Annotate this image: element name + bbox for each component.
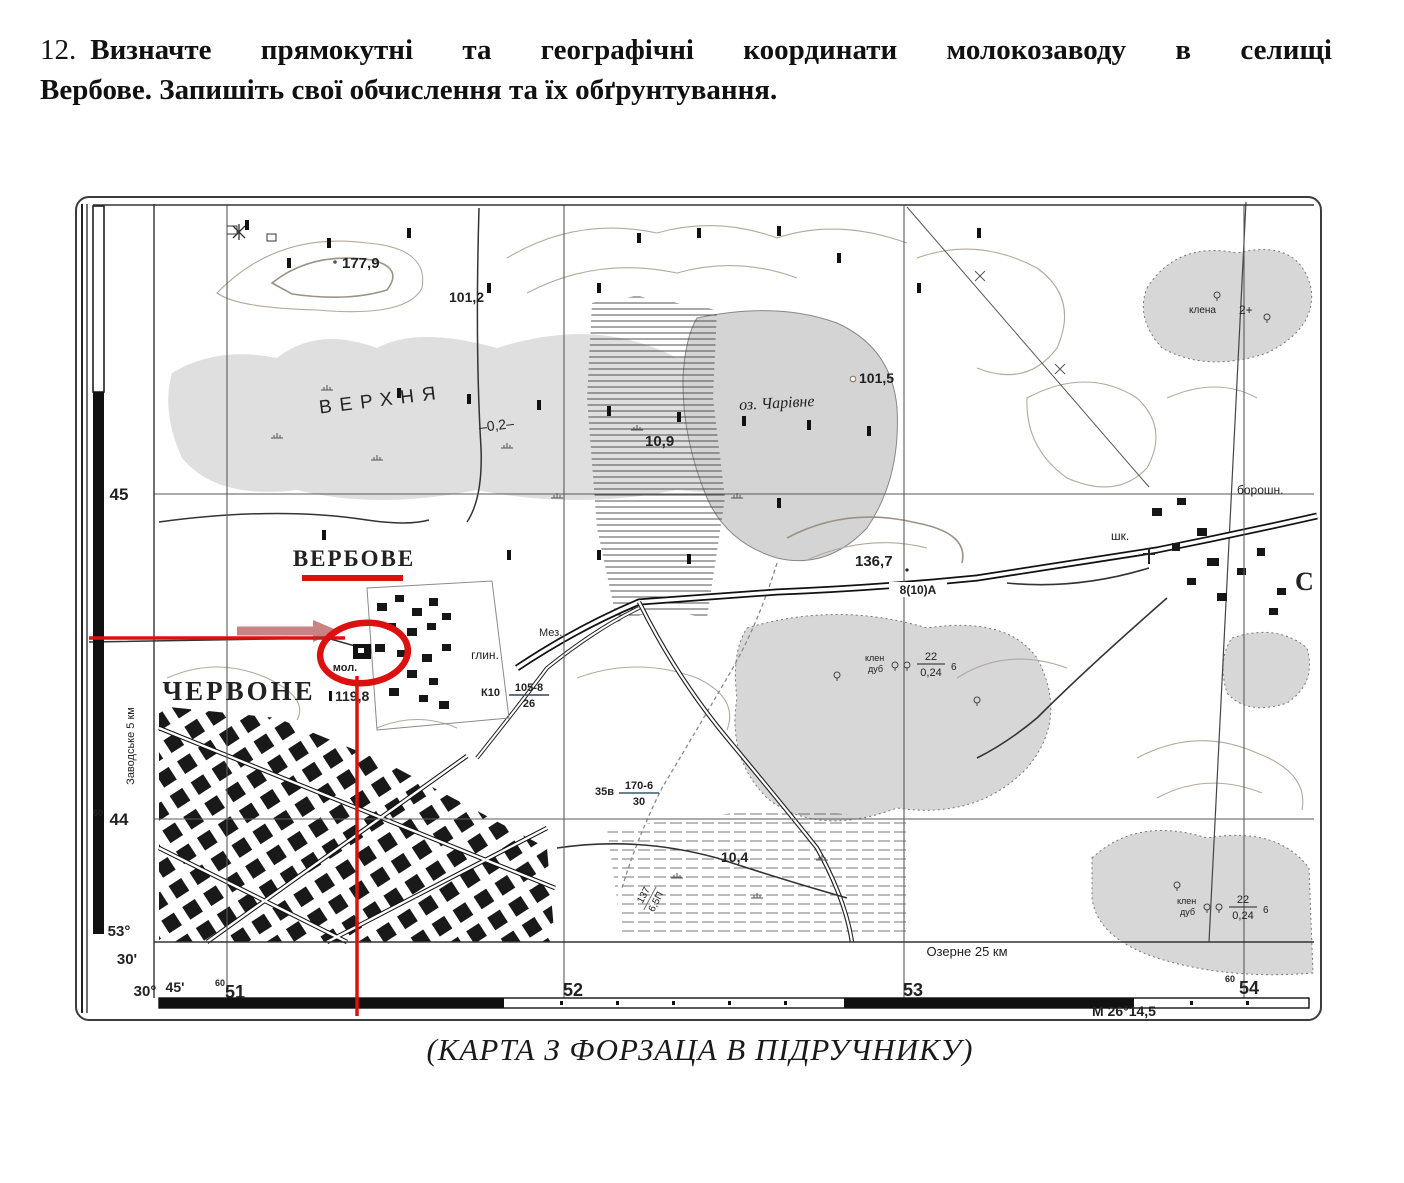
- bridge1-top: 105-8: [515, 682, 543, 694]
- mez-label: Мез.: [539, 627, 562, 639]
- settlement-label-chervone: ЧЕРВОНЕ: [162, 676, 315, 706]
- elevation-101-2: 101,2: [449, 289, 484, 305]
- clay-pit-label: глин.: [471, 648, 499, 662]
- map-caption: (КАРТА З ФОРЗАЦА В ПІДРУЧНИКУ): [80, 1032, 1320, 1068]
- wetland-hatched-area: [587, 296, 725, 622]
- northing-44-label: 44: [110, 810, 129, 829]
- spot-height-dot: [333, 260, 337, 264]
- settlement-label-partial: С: [1295, 567, 1314, 596]
- task-statement: 12.Визначте прямокутні та географічні ко…: [40, 30, 1332, 110]
- forest2-species1: клен: [1177, 896, 1196, 906]
- topo-map-svg: 177,9 101,2 101,5 ВЕРХНЯ –0,2– оз. Чарів…: [77, 198, 1320, 1019]
- easting-54-sup: 60: [1225, 974, 1235, 984]
- elevation-101-5: 101,5: [859, 370, 894, 386]
- latitude-min-label: 30': [117, 951, 137, 968]
- forest1-species2: дуб: [868, 664, 883, 674]
- spring-icon: [850, 376, 856, 382]
- topographic-map: 177,9 101,2 101,5 ВЕРХНЯ –0,2– оз. Чарів…: [75, 196, 1322, 1021]
- forest1-species1: клен: [865, 653, 884, 663]
- easting-51-label: 51: [225, 982, 245, 1002]
- easting-51-sup: 60: [215, 978, 225, 988]
- milk-plant-label: мол.: [333, 662, 357, 674]
- flour-mill-label: борошн.: [1237, 483, 1283, 497]
- depth-10-9-label: 10,9: [645, 433, 674, 450]
- shrub-height-label: 2+: [1239, 303, 1253, 317]
- bridge2-top: 170-6: [625, 780, 653, 792]
- northing-45-label: 45: [110, 485, 129, 504]
- longitude-min-label: 45': [166, 979, 185, 995]
- bridge2-bottom: 30: [633, 796, 645, 808]
- elevation-119-8: 119,8: [335, 688, 369, 704]
- destination-left-label: Заводське 5 км: [125, 707, 137, 785]
- task-number: 12.: [40, 34, 90, 66]
- shrub-species-label: клена: [1189, 305, 1216, 316]
- easting-54-label: 54: [1239, 978, 1259, 998]
- bridge1-prefix: К10: [481, 687, 500, 699]
- forest2-spacing: 6: [1263, 905, 1269, 916]
- elevation-177-9: 177,9: [342, 255, 380, 272]
- easting-52-label: 52: [563, 980, 583, 1000]
- forest1-height: 22: [925, 651, 937, 663]
- settlement-label-verbove: ВЕРБОВЕ: [293, 546, 415, 571]
- northing-44-sup: 60: [93, 808, 103, 818]
- elevation-136-7: 136,7: [855, 553, 893, 570]
- forest1-spacing: 6: [951, 662, 957, 673]
- highway-spec-label: 8(10)А: [900, 583, 937, 597]
- bridge-label-1: К10 105-8 26: [481, 682, 549, 710]
- task-text-1: Визначте прямокутні та географічні коорд…: [90, 34, 1332, 66]
- forest1-diameter: 0,24: [920, 667, 941, 679]
- spot-height-dot-2: [905, 568, 908, 571]
- forest2-diameter: 0,24: [1232, 910, 1253, 922]
- right-village-blocks: [1152, 498, 1286, 615]
- easting-53-label: 53: [903, 980, 923, 1000]
- forest2-species2: дуб: [1180, 907, 1195, 917]
- latitude-deg-label: 53°: [108, 923, 131, 940]
- longitude-deg-label: 30°: [134, 983, 157, 1000]
- depth-10-4-label: 10,4: [721, 849, 748, 865]
- bridge2-prefix: 35в: [595, 786, 614, 798]
- task-line-2: Вербове. Запишіть свої обчислення та їх …: [40, 70, 1332, 110]
- corner-note-label: М 26°14,5: [1092, 1003, 1156, 1019]
- bridge1-bottom: 26: [523, 698, 535, 710]
- destination-right-label: Озерне 25 км: [926, 944, 1007, 959]
- bridge-label-2: 35в 170-6 30: [595, 780, 659, 808]
- worksheet-page: { "colors": {"annotation_red": "#dd1010"…: [0, 0, 1404, 1183]
- forest2-height: 22: [1237, 894, 1249, 906]
- school-label: шк.: [1111, 529, 1129, 543]
- power-line: [907, 207, 1149, 487]
- task-line-1: 12.Визначте прямокутні та географічні ко…: [40, 30, 1332, 70]
